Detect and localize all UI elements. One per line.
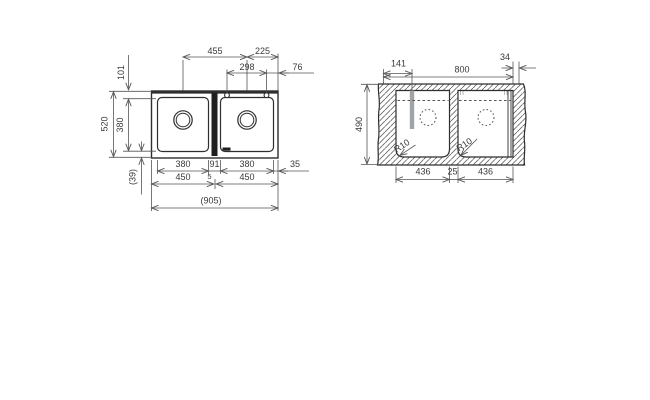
dim-label-34: 34: [500, 52, 510, 62]
dim-label-520: 520: [100, 116, 110, 131]
sink-technical-drawing-page: 455 225 298 76 101 520 380 (39) 380 91 3…: [0, 0, 650, 400]
section-view: 141 800 34 490 R10 R10 436 25 436: [354, 52, 536, 183]
dim-label-905: (905): [200, 196, 221, 206]
dim-label-450-b: 450: [239, 172, 254, 182]
dim-label-800: 800: [454, 65, 469, 75]
plan-view: 455 225 298 76 101 520 380 (39) 380 91 3…: [100, 46, 315, 211]
drain-right: [238, 111, 256, 129]
dim-label-436-b: 436: [478, 167, 493, 177]
faucet-hole-right: [264, 93, 269, 98]
dim-label-25: 25: [447, 167, 457, 177]
drain-left: [174, 111, 192, 129]
dim-label-35: 35: [290, 159, 300, 169]
dim-label-225: 225: [255, 46, 270, 56]
dim-label-455: 455: [207, 46, 222, 56]
dim-label-5: 5: [207, 172, 211, 181]
overflow-slot: [223, 148, 231, 151]
dim-label-298: 298: [239, 62, 254, 72]
dim-label-380-b: 380: [239, 159, 254, 169]
drain-hidden-right: [478, 110, 494, 126]
dim-label-380-a: 380: [175, 159, 190, 169]
dim-label-141: 141: [391, 59, 406, 69]
dim-label-91: 91: [209, 159, 219, 169]
center-divider: [212, 93, 218, 157]
dim-label-380-side: 380: [115, 117, 125, 132]
dim-label-490: 490: [354, 117, 364, 132]
technical-drawing: 455 225 298 76 101 520 380 (39) 380 91 3…: [0, 0, 650, 400]
right-bowl-outline: [221, 98, 274, 152]
dim-label-39: (39): [128, 169, 138, 185]
left-bowl-outline: [158, 98, 209, 152]
dim-label-436-a: 436: [415, 167, 430, 177]
dim-label-76: 76: [292, 62, 302, 72]
drain-hidden-left: [420, 110, 436, 126]
plan-dimension-labels: 455 225 298 76 101 520 380 (39) 380 91 3…: [100, 46, 303, 206]
dim-label-101: 101: [116, 65, 126, 80]
drain-remote-bar: [410, 91, 414, 130]
faucet-hole-left: [225, 93, 230, 98]
dim-label-450-a: 450: [175, 172, 190, 182]
